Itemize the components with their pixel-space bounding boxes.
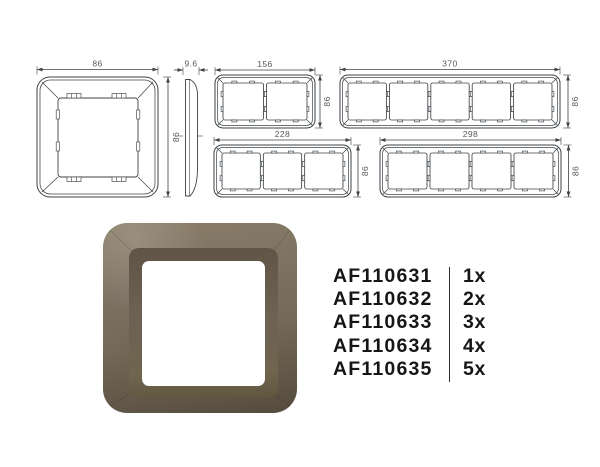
product-qty: 3x	[463, 313, 508, 333]
dim-label-width-4gang: 298	[463, 129, 478, 139]
product-list: AF110631 1x AF110632 2x AF110633 3x AF11…	[333, 265, 508, 381]
drawing-1gang-frame	[37, 67, 171, 198]
dim-label-depth-profile: 9.6	[184, 59, 197, 69]
product-qty: 2x	[463, 290, 508, 310]
dim-label-width-5gang: 370	[442, 59, 457, 69]
dim-label-width-2gang: 156	[257, 59, 272, 69]
spec-sheet-page: { "drawings": { "line_color": "#3e4347",…	[0, 0, 600, 467]
dim-label-height-3gang: 86	[360, 166, 370, 176]
drawing-3gang-frame	[214, 137, 361, 197]
divider-line	[449, 267, 451, 383]
dim-label-height-4gang: 86	[571, 166, 581, 176]
product-row: AF110635 5x	[333, 358, 508, 381]
product-row: AF110634 4x	[333, 335, 508, 358]
dim-label-width-1gang: 86	[92, 59, 102, 69]
dim-label-width-3gang: 228	[275, 129, 290, 139]
product-row: AF110632 2x	[333, 288, 508, 311]
product-code: AF110632	[333, 290, 463, 310]
drawing-side-profile	[174, 67, 208, 196]
drawing-4gang-frame	[380, 137, 572, 197]
frame-window-cutout	[142, 261, 265, 386]
product-code: AF110633	[333, 313, 463, 333]
technical-drawings: 86 9.6 156 370 228 298 86 86 86 86 86	[0, 0, 600, 467]
dim-label-height-1gang: 86	[171, 132, 181, 142]
product-qty: 1x	[463, 267, 508, 287]
dim-label-height-2gang: 86	[322, 96, 332, 106]
product-row: AF110633 3x	[333, 312, 508, 335]
product-code: AF110635	[333, 360, 463, 380]
drawing-2gang-frame	[215, 67, 323, 128]
product-code: AF110631	[333, 267, 463, 287]
product-qty: 4x	[463, 337, 508, 357]
drawing-geometry	[37, 67, 572, 198]
product-qty: 5x	[463, 360, 508, 380]
product-row: AF110631 1x	[333, 265, 508, 288]
drawing-5gang-frame	[340, 67, 571, 129]
product-code: AF110634	[333, 337, 463, 357]
dim-label-height-5gang: 86	[570, 96, 580, 106]
product-photo	[103, 223, 297, 413]
